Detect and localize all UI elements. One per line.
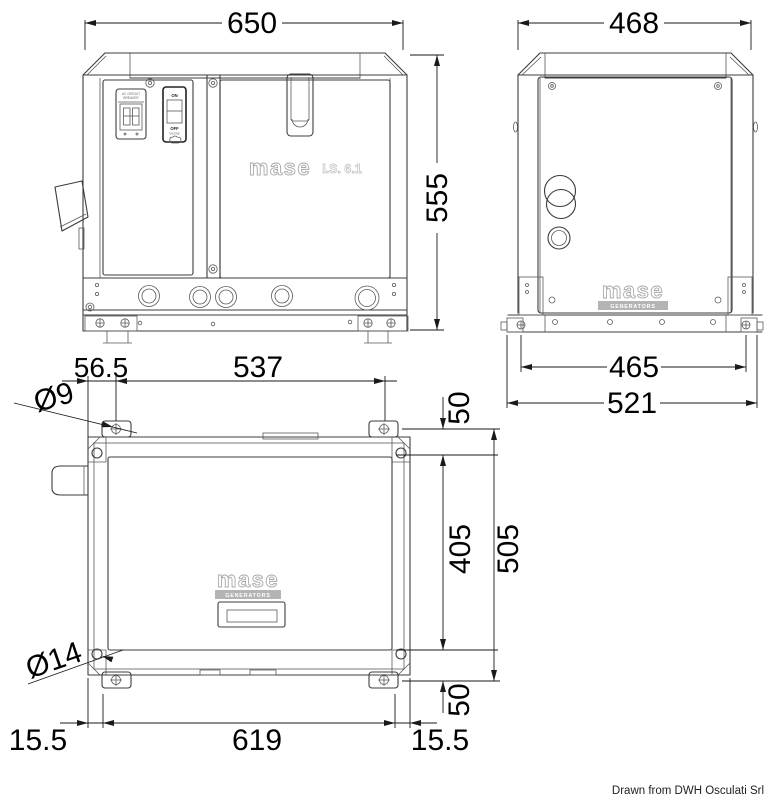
dim-505: 505	[492, 524, 525, 574]
model-label: I.S. 6.1	[322, 162, 362, 176]
dim-plan-right: 50 405 505 50	[396, 391, 525, 716]
door-latch	[287, 74, 313, 136]
side-logo: mase GENERATORS	[598, 278, 668, 310]
ac-circuit-breaker: AC CIRCUIT BREAKER	[116, 89, 146, 139]
dim-50-top: 50	[443, 391, 476, 424]
corner-brackets	[88, 437, 410, 675]
dim-plan-top: 56.5 537	[62, 351, 397, 437]
feet-lines	[103, 331, 392, 343]
dim-15-5-right: 15.5	[411, 724, 469, 757]
technical-drawing: AC CIRCUIT BREAKER ON OFF ENGINE mase I.	[0, 0, 766, 800]
exhaust-stub	[52, 466, 88, 495]
dim-dia9: Ø9	[30, 376, 78, 419]
switch-off-label: OFF	[170, 126, 179, 131]
frame-hole	[396, 448, 406, 458]
frame-hole	[396, 649, 406, 659]
dim-537: 537	[233, 351, 283, 384]
engine-switch: ON OFF ENGINE	[163, 87, 186, 143]
dim-555: 555	[421, 173, 454, 223]
mounting-bracket	[85, 316, 408, 331]
dim-15-5-left: 15.5	[9, 724, 67, 757]
front-view: AC CIRCUIT BREAKER ON OFF ENGINE mase I.	[55, 7, 454, 343]
dim-650: 650	[227, 7, 277, 40]
dim-dia14: Ø14	[22, 636, 86, 686]
brand-sub: GENERATORS	[225, 593, 271, 599]
screw-icon	[549, 83, 722, 304]
dim-side-width: 468	[518, 7, 751, 50]
base-section	[83, 278, 408, 343]
dim-front-height: 555	[410, 55, 454, 330]
dim-521: 521	[607, 387, 657, 420]
dim-plan-bottom: 15.5 619 15.5	[9, 678, 469, 757]
dim-465: 465	[609, 351, 659, 384]
center-post	[207, 75, 220, 278]
top-cover	[108, 457, 392, 650]
plan-outline	[88, 437, 410, 675]
leader-hole-small: Ø9	[14, 376, 137, 433]
dim-468: 468	[609, 7, 659, 40]
cable-glands	[139, 286, 380, 311]
plan-logo: mase GENERATORS	[215, 567, 281, 599]
credit-line: Drawn from DWH Osculati Srl	[612, 785, 764, 797]
mounting-foot	[501, 318, 763, 332]
brand-logo: mase	[602, 278, 664, 303]
frame-hole	[92, 448, 102, 458]
water-ports	[545, 176, 576, 250]
breaker-label-line2: BREAKER	[123, 96, 139, 100]
side-view: mase GENERATORS	[501, 7, 763, 420]
top-recess	[263, 433, 318, 439]
dim-front-width: 650	[85, 7, 403, 50]
plan-view: mase GENERATORS 56.5 537 Ø9 Ø14	[9, 351, 525, 757]
frame-hole	[92, 649, 102, 659]
mounting-tabs	[102, 421, 398, 688]
switch-engine-label: ENGINE	[170, 132, 180, 136]
brand-logo: mase	[217, 567, 279, 592]
frame-lug	[514, 122, 518, 132]
dim-619: 619	[232, 724, 282, 757]
side-outline	[518, 53, 753, 313]
dim-405: 405	[444, 524, 477, 574]
lift-handle	[218, 602, 285, 627]
switch-on-label: ON	[171, 93, 177, 98]
dim-56-5: 56.5	[74, 352, 129, 383]
brand-logo: mase	[249, 155, 311, 180]
brand-sub: GENERATORS	[610, 304, 656, 310]
frame-lug	[754, 122, 758, 132]
dim-50-bottom: 50	[443, 683, 476, 716]
front-logo: mase I.S. 6.1	[249, 155, 362, 180]
dim-side-holes-span: 465	[521, 335, 746, 384]
